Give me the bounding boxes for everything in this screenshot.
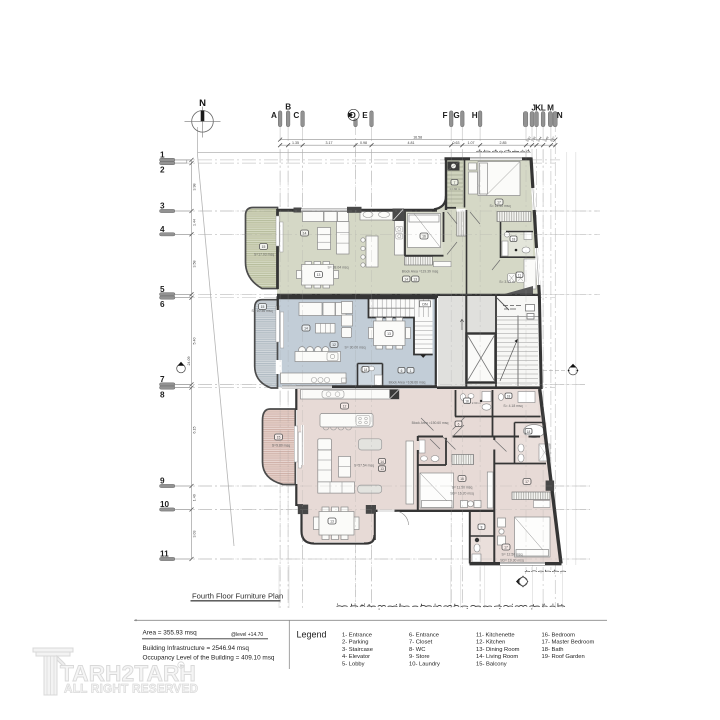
svg-text:1.44: 1.44 [193, 219, 197, 226]
svg-text:F: F [442, 111, 447, 120]
svg-text:17- Master Bedroom: 17- Master Bedroom [542, 640, 595, 646]
svg-text:N: N [199, 98, 206, 109]
svg-text:@level +14.70: @level +14.70 [231, 632, 263, 638]
svg-text:14- Living Room: 14- Living Room [476, 654, 518, 660]
svg-text:Legend: Legend [297, 630, 327, 640]
svg-text:5.40: 5.40 [193, 338, 197, 345]
svg-text:L: L [541, 104, 546, 113]
svg-text:4- Elevator: 4- Elevator [342, 654, 370, 660]
svg-text:15- Balcony: 15- Balcony [476, 661, 507, 667]
svg-text:S=9.80 msq: S=9.80 msq [272, 444, 290, 448]
svg-text:M: M [547, 104, 554, 113]
svg-text:1: 1 [160, 151, 165, 160]
svg-text:11: 11 [160, 550, 169, 559]
svg-text:13- Dining Room: 13- Dining Room [476, 647, 520, 653]
svg-text:Block Area =119.39 msq: Block Area =119.39 msq [402, 270, 439, 274]
svg-text:N: N [557, 111, 563, 120]
svg-text:17: 17 [497, 201, 501, 205]
svg-text:2: 2 [160, 166, 165, 175]
svg-text:6: 6 [160, 300, 165, 309]
svg-text:6: 6 [401, 369, 403, 373]
svg-text:DN: DN [422, 303, 428, 307]
svg-text:6.15: 6.15 [193, 427, 197, 434]
svg-text:G: G [453, 111, 459, 120]
svg-text:16.58: 16.58 [413, 135, 422, 139]
svg-text:7: 7 [454, 181, 456, 185]
svg-text:1.35: 1.35 [292, 141, 299, 145]
svg-text:12- Kitchen: 12- Kitchen [476, 640, 505, 646]
svg-text:8: 8 [481, 525, 483, 529]
svg-text:Fourth Floor Furniture Plan: Fourth Floor Furniture Plan [192, 592, 283, 601]
svg-text:A: A [271, 111, 277, 120]
svg-text:4: 4 [160, 225, 165, 234]
svg-text:11: 11 [518, 273, 522, 277]
svg-text:4.81: 4.81 [408, 141, 415, 145]
svg-text:14: 14 [304, 327, 308, 331]
svg-text:18: 18 [527, 430, 531, 434]
svg-text:17: 17 [525, 480, 529, 484]
svg-text:0.63: 0.63 [453, 141, 460, 145]
svg-text:H: H [472, 111, 478, 120]
svg-text:3.17: 3.17 [326, 141, 333, 145]
svg-text:12: 12 [332, 343, 336, 347]
svg-text:18: 18 [507, 394, 511, 398]
svg-text:6: 6 [458, 422, 460, 426]
svg-text:1- Entrance: 1- Entrance [342, 633, 372, 639]
svg-text:8- WC: 8- WC [409, 647, 425, 653]
svg-text:18: 18 [512, 237, 516, 241]
svg-text:7- Closet: 7- Closet [409, 640, 433, 646]
svg-text:Block Area =108.66 msq: Block Area =108.66 msq [389, 381, 426, 385]
svg-text:C: C [293, 111, 299, 120]
svg-text:S=17.03 msq: S=17.03 msq [254, 253, 274, 257]
svg-text:10: 10 [160, 500, 170, 509]
svg-text:3.98: 3.98 [193, 184, 197, 191]
svg-text:18- Bath: 18- Bath [542, 647, 564, 653]
svg-text:9- Store: 9- Store [409, 654, 430, 660]
svg-text:S= 38.04 msq: S= 38.04 msq [327, 266, 348, 270]
svg-text:16- Bedroom: 16- Bedroom [542, 633, 576, 639]
svg-text:S= 30.00 msq: S= 30.00 msq [344, 346, 365, 350]
svg-text:3.58: 3.58 [193, 261, 197, 268]
svg-text:13: 13 [387, 332, 391, 336]
svg-text:S= 4.18 msq: S= 4.18 msq [503, 404, 522, 408]
svg-text:5- Lobby: 5- Lobby [342, 661, 365, 667]
svg-text:0.98: 0.98 [360, 141, 367, 145]
svg-text:8: 8 [160, 391, 165, 400]
svg-text:14: 14 [303, 232, 307, 236]
svg-text:Block Area =150.60 msq: Block Area =150.60 msq [412, 421, 449, 425]
svg-text:9: 9 [160, 477, 165, 486]
svg-text:12: 12 [343, 405, 347, 409]
svg-text:19- Roof Garden: 19- Roof Garden [542, 654, 585, 660]
svg-text:24.09: 24.09 [187, 357, 191, 366]
svg-text:3- Staircase: 3- Staircase [342, 647, 373, 653]
svg-text:13: 13 [380, 467, 384, 471]
svg-text:15: 15 [262, 245, 266, 249]
svg-text:14: 14 [380, 460, 384, 464]
svg-text:Area = 355.93 msq: Area = 355.93 msq [143, 630, 198, 637]
svg-text:16: 16 [422, 235, 426, 239]
svg-text:S= 3.33 m: S= 3.33 m [499, 280, 515, 284]
svg-text:15: 15 [261, 305, 265, 309]
svg-text:18: 18 [465, 399, 469, 403]
svg-text:2.85: 2.85 [500, 141, 507, 145]
svg-text:B: B [285, 102, 291, 111]
svg-text:3: 3 [160, 202, 165, 211]
svg-text:1: 1 [410, 369, 412, 373]
svg-text:5: 5 [160, 285, 165, 294]
svg-text:S=57.54 msq: S=57.54 msq [354, 464, 374, 468]
svg-text:E: E [362, 111, 368, 120]
svg-text:Building Infrastructure = 2546: Building Infrastructure = 2546.94 msq [143, 645, 250, 652]
svg-text:6- Entrance: 6- Entrance [409, 633, 439, 639]
svg-text:13: 13 [413, 278, 417, 282]
svg-text:13: 13 [330, 520, 334, 524]
svg-text:1.07: 1.07 [468, 141, 475, 145]
svg-text:13: 13 [317, 273, 321, 277]
svg-text:2- Parking: 2- Parking [342, 640, 368, 646]
svg-text:S= 12.50 msq: S= 12.50 msq [501, 553, 522, 557]
svg-text:14: 14 [404, 278, 408, 282]
svg-text:ALL RIGHT RESERVED: ALL RIGHT RESERVED [64, 682, 199, 696]
svg-text:17: 17 [504, 546, 508, 550]
svg-text:3.03: 3.03 [193, 531, 197, 538]
svg-text:7: 7 [160, 375, 165, 384]
svg-text:1.40: 1.40 [193, 494, 197, 501]
svg-text:11- Kitchenette: 11- Kitchenette [476, 633, 515, 639]
svg-text:18: 18 [364, 368, 368, 372]
svg-text:10- Laundry: 10- Laundry [409, 661, 440, 667]
